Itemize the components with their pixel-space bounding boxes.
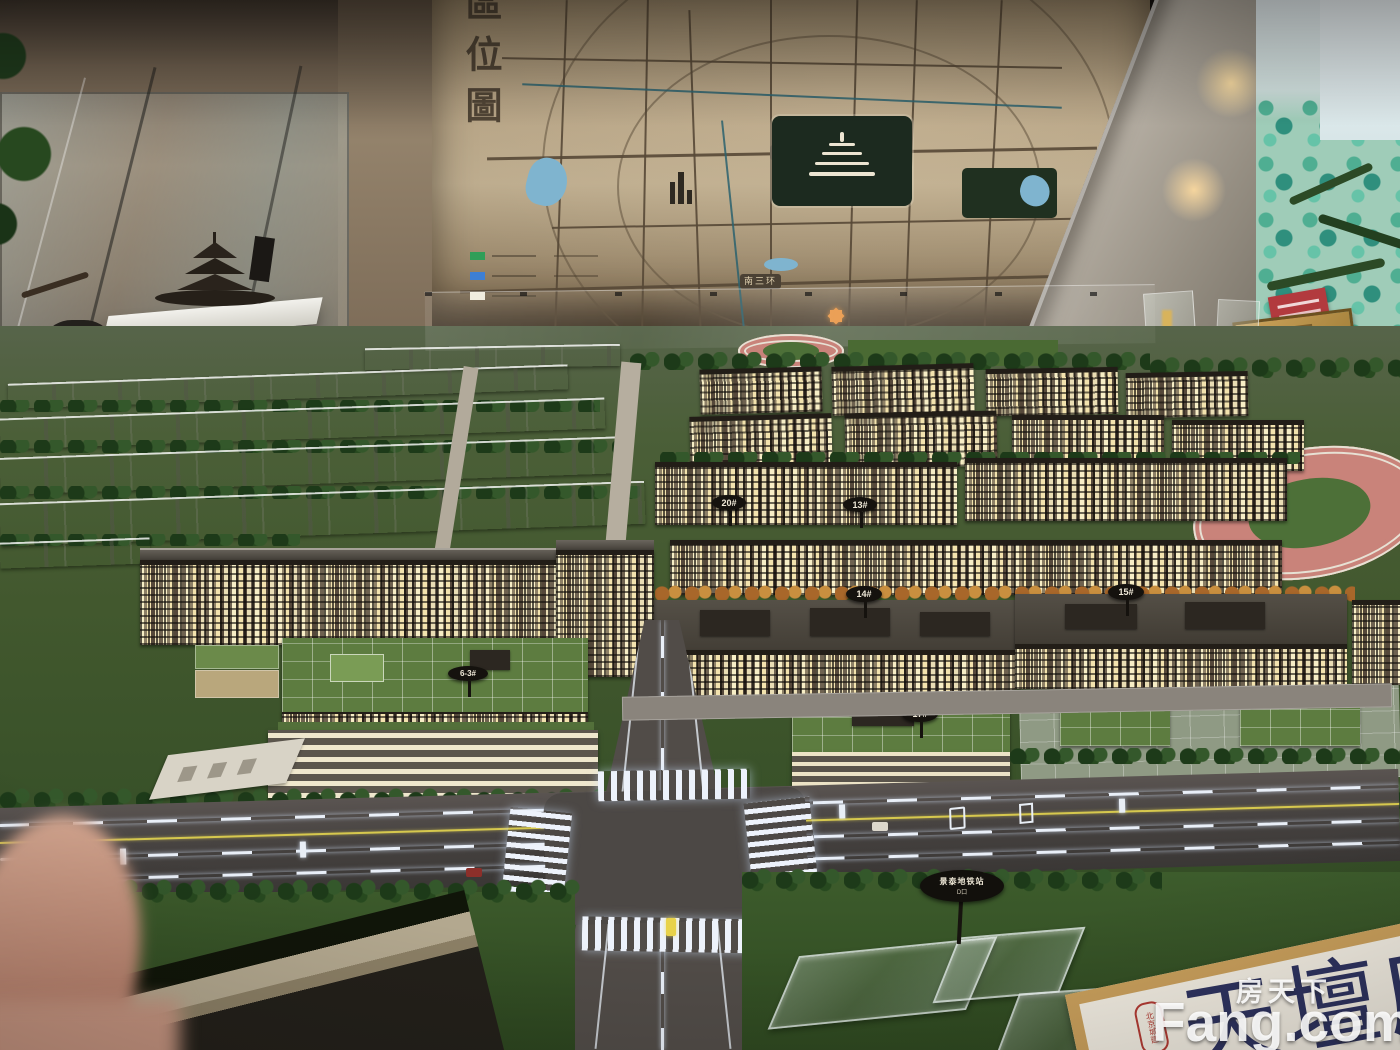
- legend-chip-green: [470, 252, 485, 260]
- legend-text-bar: [554, 275, 598, 277]
- building-15-face: [1015, 644, 1347, 689]
- building-sign-20: 20#: [712, 495, 746, 510]
- office-complex-left: [140, 560, 570, 645]
- road-marking: [1019, 803, 1034, 824]
- lane-arrow: [839, 804, 845, 818]
- residential-building-edge: [1352, 600, 1400, 685]
- taxi-car: [666, 918, 676, 936]
- wall-location-map: 區位圖 南二环 南三环: [432, 0, 1150, 334]
- wall-sconce-glow: [1162, 158, 1226, 222]
- window-screen: [1320, 0, 1400, 140]
- residential-building-13: [965, 458, 1287, 521]
- map-cbd-icon: [670, 182, 675, 204]
- fang-watermark: 房天下 Fang.com: [1152, 970, 1397, 1050]
- road-marking-diamond: [949, 806, 966, 830]
- rooftop-garden: [282, 638, 588, 716]
- white-building-row: [0, 537, 150, 568]
- sports-court: [195, 670, 279, 698]
- map-cbd-icon: [687, 190, 692, 204]
- residential-building: [831, 363, 974, 416]
- residential-building: [699, 366, 822, 414]
- building-sign-13: 13#: [843, 497, 877, 512]
- building-14-roof: [640, 600, 1015, 654]
- legend-text-bar: [492, 255, 536, 257]
- map-water-2: [764, 258, 798, 271]
- residential-building-20: [655, 462, 957, 525]
- plaza-trees: [1010, 748, 1400, 764]
- sales-center-sandtable-photo: 區位圖 南二环 南三环: [0, 0, 1400, 1050]
- lane-arrow: [1119, 799, 1125, 813]
- building-sign-6-3: 6-3#: [448, 666, 488, 681]
- building-15-roof: [1015, 594, 1347, 646]
- metro-station-name: 景泰地铁站: [940, 876, 985, 887]
- white-car: [872, 822, 888, 831]
- map-cbd-icon: [678, 172, 684, 204]
- watermark-en: Fang.com: [1152, 990, 1400, 1050]
- map-title-vertical: 區位圖: [452, 0, 506, 214]
- map-lake: [1016, 172, 1054, 210]
- legend-text-bar: [492, 275, 536, 277]
- crosswalk-north: [598, 769, 751, 802]
- map-tiantan-park-icon: [772, 116, 912, 206]
- map-label-south-3rd-ring: 南三环: [740, 274, 781, 289]
- residential-building: [986, 367, 1119, 416]
- foreground-plant-left: [0, 0, 52, 280]
- metro-station-sign: 景泰地铁站 D口: [920, 870, 1004, 902]
- finger-blur: [0, 1000, 180, 1050]
- map-park-block: [962, 168, 1057, 218]
- residential-building: [1126, 371, 1249, 418]
- building-sign-14: 14#: [846, 586, 882, 602]
- legend-text-bar: [554, 255, 598, 257]
- railing-clamps: [425, 292, 1155, 296]
- building-sign-15: 15#: [1108, 584, 1144, 600]
- sports-court: [195, 645, 279, 669]
- legend-chip-blue: [470, 272, 485, 280]
- lane-arrow: [300, 841, 306, 857]
- metro-exit-label: D口: [957, 887, 967, 896]
